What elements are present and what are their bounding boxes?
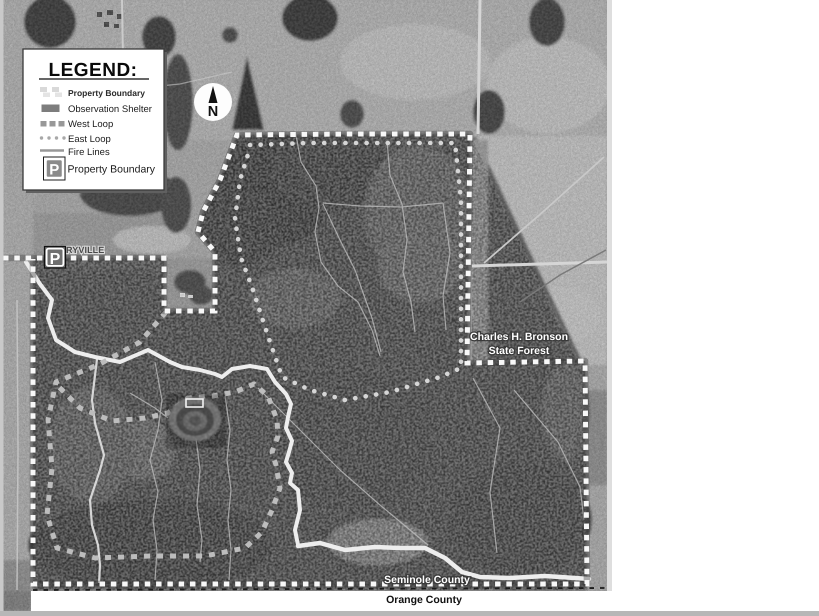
svg-text:Orange County: Orange County xyxy=(386,594,462,606)
svg-text:State Forest: State Forest xyxy=(489,345,550,357)
svg-text:East Loop: East Loop xyxy=(68,134,111,145)
svg-text:Seminole County: Seminole County xyxy=(384,574,470,586)
svg-text:Charles H. Bronson: Charles H. Bronson xyxy=(470,331,568,343)
svg-text:N: N xyxy=(208,104,218,120)
svg-text:Observation Shelter: Observation Shelter xyxy=(68,104,152,115)
svg-text:LEGEND:: LEGEND: xyxy=(49,60,138,81)
svg-text:Fire Lines: Fire Lines xyxy=(68,147,110,158)
svg-text:RYVILLE: RYVILLE xyxy=(66,245,104,255)
svg-text:Property Boundary: Property Boundary xyxy=(68,88,145,98)
svg-text:Property Boundary: Property Boundary xyxy=(68,164,156,176)
svg-text:P: P xyxy=(49,162,59,179)
svg-text:P: P xyxy=(50,251,61,268)
svg-text:West Loop: West Loop xyxy=(68,119,113,130)
